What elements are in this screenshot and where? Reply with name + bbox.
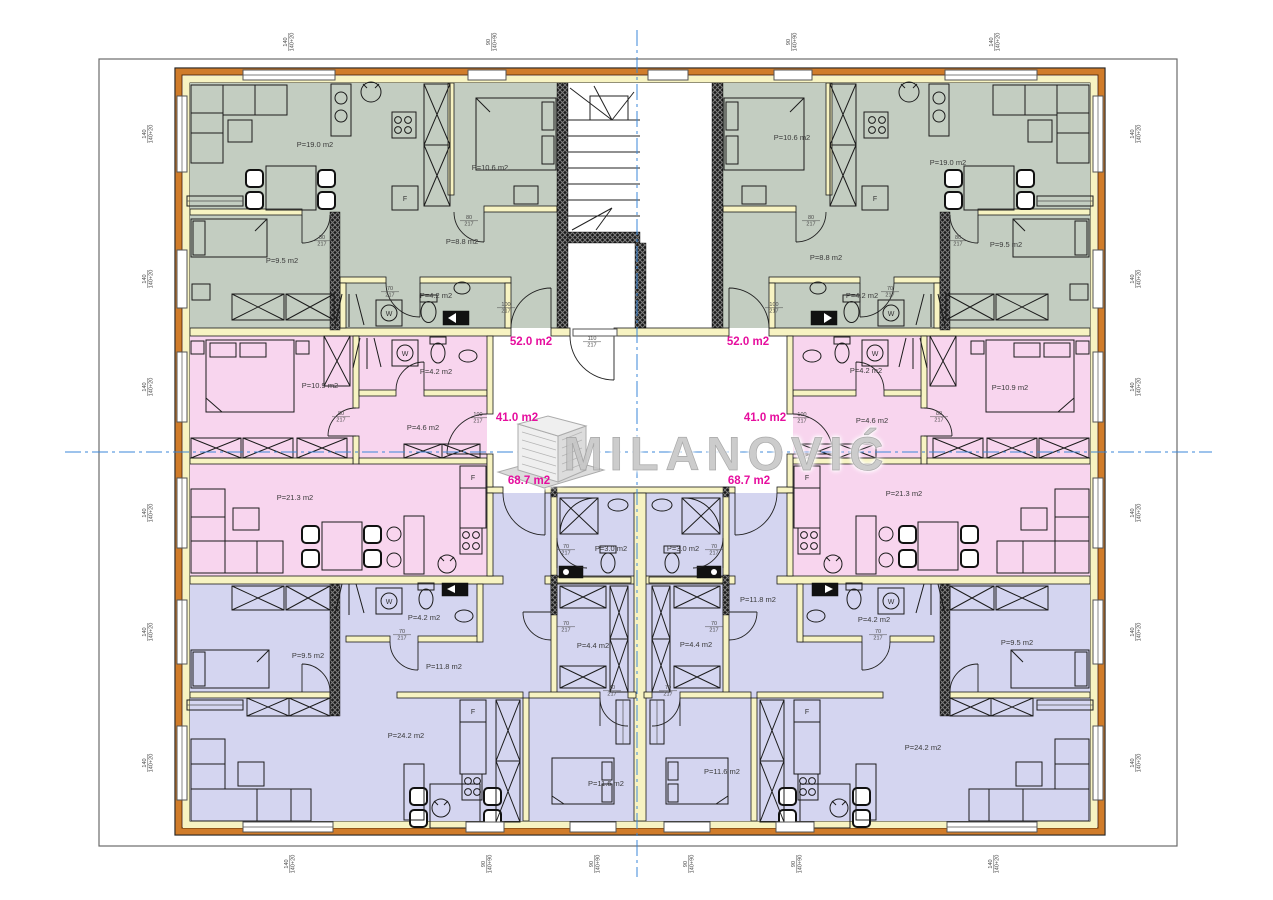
apartment-total-area-label: 41.0 m2 <box>744 412 786 424</box>
fixture-label: W <box>386 311 393 318</box>
svg-text:140140+20: 140140+20 <box>284 855 297 874</box>
dimension-label: 140140+20 <box>988 855 1001 874</box>
fixture-label: F <box>805 709 809 716</box>
room-area-label: P=11.6 m2 <box>704 767 740 776</box>
dimension-label: 140140+20 <box>1130 623 1143 642</box>
svg-text:110217: 110217 <box>587 336 596 349</box>
room-area-label: P=11.8 m2 <box>426 662 462 671</box>
room-area-label: P=9.5 m2 <box>990 240 1022 249</box>
apartment-total-area-label: 41.0 m2 <box>496 412 538 424</box>
room-area-label: P=3.0 m2 <box>667 544 699 553</box>
apartment-total-area-label: 52.0 m2 <box>510 336 552 348</box>
dimension-label: 140140+20 <box>1130 754 1143 773</box>
room-area-label: P=4.2 m2 <box>420 367 452 376</box>
room-area-label: P=10.9 m2 <box>302 381 338 390</box>
room-area-label: P=24.2 m2 <box>388 731 424 740</box>
svg-text:100217: 100217 <box>769 302 778 315</box>
room-area-label: P=3.0 m2 <box>595 544 627 553</box>
fixture-label: W <box>386 599 393 606</box>
apartment-total-area-label: 68.7 m2 <box>508 475 550 487</box>
dimension-label: 90140+90 <box>486 33 499 52</box>
room-area-label: P=10.6 m2 <box>472 163 508 172</box>
dimension-label: 90140+90 <box>786 33 799 52</box>
room-area-label: P=21.3 m2 <box>277 493 313 502</box>
svg-text:140140+20: 140140+20 <box>142 754 155 773</box>
svg-text:100217: 100217 <box>797 412 806 425</box>
svg-text:100217: 100217 <box>473 412 482 425</box>
fixture-label: F <box>403 196 407 203</box>
fixture-label: W <box>402 351 409 358</box>
fixture-label: F <box>873 196 877 203</box>
svg-text:140140+20: 140140+20 <box>1130 378 1143 397</box>
room-area-label: P=24.2 m2 <box>905 743 941 752</box>
room-area-label: P=8.8 m2 <box>810 253 842 262</box>
dimension-label: 90140+90 <box>683 855 696 874</box>
svg-text:90140+90: 90140+90 <box>683 855 696 874</box>
fixture-label: F <box>471 709 475 716</box>
room-area-label: P=4.6 m2 <box>407 423 439 432</box>
svg-text:140140+20: 140140+20 <box>142 504 155 523</box>
svg-text:90140+90: 90140+90 <box>486 33 499 52</box>
room-area-label: P=4.2 m2 <box>846 291 878 300</box>
fixture-label: W <box>888 311 895 318</box>
svg-text:140140+20: 140140+20 <box>1130 623 1143 642</box>
dimension-label: 140140+20 <box>1130 125 1143 144</box>
room-area-label: P=21.3 m2 <box>886 489 922 498</box>
dimension-label: 140140+20 <box>1130 378 1143 397</box>
room-area-label: P=9.5 m2 <box>292 651 324 660</box>
svg-text:140140+20: 140140+20 <box>1130 125 1143 144</box>
svg-text:140140+20: 140140+20 <box>283 33 296 52</box>
dimension-label: 140140+20 <box>142 125 155 144</box>
room-area-label: P=9.5 m2 <box>266 256 298 265</box>
room-area-label: P=8.8 m2 <box>446 237 478 246</box>
dimension-label: 140140+20 <box>142 270 155 289</box>
svg-text:140140+20: 140140+20 <box>1130 504 1143 523</box>
dimension-label: 140140+20 <box>1130 504 1143 523</box>
dimension-label: 140140+20 <box>142 504 155 523</box>
room-area-label: P=4.2 m2 <box>408 613 440 622</box>
fixture-label: W <box>872 351 879 358</box>
room-area-label: P=4.4 m2 <box>680 640 712 649</box>
dimension-label: 140140+20 <box>989 33 1002 52</box>
svg-text:90140+90: 90140+90 <box>589 855 602 874</box>
room-area-label: P=10.6 m2 <box>774 133 810 142</box>
room-area-label: P=4.2 m2 <box>420 291 452 300</box>
dimension-label: 140140+20 <box>283 33 296 52</box>
svg-text:140140+20: 140140+20 <box>142 378 155 397</box>
svg-text:90140+90: 90140+90 <box>481 855 494 874</box>
svg-text:140140+20: 140140+20 <box>142 623 155 642</box>
svg-text:140140+20: 140140+20 <box>142 270 155 289</box>
svg-text:100217: 100217 <box>501 302 510 315</box>
apartment-total-area-label: 68.7 m2 <box>728 475 770 487</box>
dimension-label: 90140+90 <box>791 855 804 874</box>
svg-text:140140+20: 140140+20 <box>989 33 1002 52</box>
room-area-label: P=19.0 m2 <box>297 140 333 149</box>
dimension-label: 140140+20 <box>284 855 297 874</box>
svg-text:90140+90: 90140+90 <box>791 855 804 874</box>
dimension-label: 140140+20 <box>142 623 155 642</box>
room-area-label: P=19.0 m2 <box>930 158 966 167</box>
dimension-label: 90140+90 <box>481 855 494 874</box>
svg-text:140140+20: 140140+20 <box>1130 270 1143 289</box>
room-area-label: P=4.2 m2 <box>858 615 890 624</box>
room-area-label: P=11.8 m2 <box>740 595 776 604</box>
apartment-total-area-label: 52.0 m2 <box>727 336 769 348</box>
room-area-label: P=10.9 m2 <box>992 383 1028 392</box>
watermark: MILANOVIĆ <box>498 416 890 488</box>
room-area-label: P=11.6 m2 <box>588 779 624 788</box>
fixture-label: F <box>471 475 475 482</box>
svg-text:90140+90: 90140+90 <box>786 33 799 52</box>
room-area-label: P=4.4 m2 <box>577 641 609 650</box>
dimension-label: 140140+20 <box>142 378 155 397</box>
fixture-label: W <box>888 599 895 606</box>
svg-text:140140+20: 140140+20 <box>988 855 1001 874</box>
floor-plan-page: MILANOVIĆ P=19.0 m2P=10.6 m2P=8.8 m2P=9.… <box>0 0 1273 900</box>
dimension-label: 90140+90 <box>589 855 602 874</box>
room-area-label: P=9.5 m2 <box>1001 638 1033 647</box>
watermark-brand-text: MILANOVIĆ <box>564 427 891 480</box>
floor-plan-drawing: MILANOVIĆ P=19.0 m2P=10.6 m2P=8.8 m2P=9.… <box>0 0 1273 900</box>
dimension-label: 140140+20 <box>1130 270 1143 289</box>
svg-text:140140+20: 140140+20 <box>1130 754 1143 773</box>
room-area-label: P=4.2 m2 <box>850 366 882 375</box>
svg-text:140140+20: 140140+20 <box>142 125 155 144</box>
room-area-label: P=4.6 m2 <box>856 416 888 425</box>
fixture-label: F <box>805 475 809 482</box>
dimension-label: 140140+20 <box>142 754 155 773</box>
